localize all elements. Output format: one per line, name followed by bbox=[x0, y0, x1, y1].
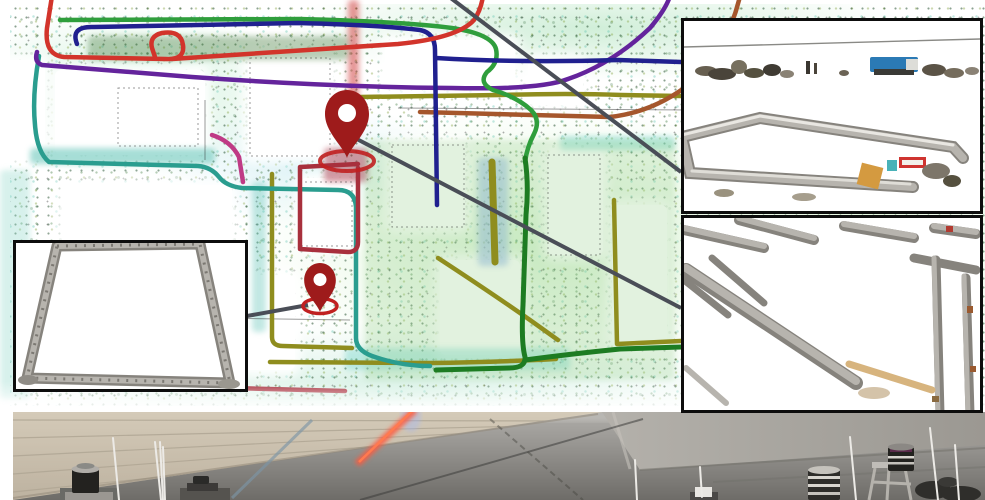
garage-robots-photo bbox=[13, 412, 985, 500]
enclosure-pointcloud-svg bbox=[16, 243, 245, 389]
wall-corner-blob bbox=[218, 379, 240, 389]
courtyard-pointcloud-svg bbox=[684, 21, 980, 211]
figure-canvas bbox=[0, 0, 985, 500]
inset-corridors-pointcloud bbox=[681, 215, 983, 413]
debris-cluster bbox=[695, 60, 979, 80]
garage-photo-svg bbox=[13, 412, 985, 500]
corridor-walls bbox=[684, 218, 976, 410]
courtyard-walls bbox=[684, 116, 963, 187]
location-pin-icon-2 bbox=[304, 263, 336, 312]
trajectory-purple bbox=[36, 0, 670, 88]
powerline bbox=[684, 39, 980, 47]
striped-lidar-cylinder bbox=[808, 466, 840, 500]
leader-line-top-right-inset bbox=[448, 0, 681, 172]
trajectory-maroon bbox=[229, 164, 358, 391]
trajectory-olive bbox=[270, 94, 681, 363]
location-pin-icon-1 bbox=[325, 90, 369, 158]
wall-corner-blob bbox=[18, 375, 38, 385]
corridors-pointcloud-svg bbox=[684, 218, 980, 410]
enclosure-walls bbox=[27, 244, 230, 383]
inset-enclosure-pointcloud bbox=[13, 240, 248, 392]
blue-truck bbox=[870, 57, 918, 75]
leader-line-bottom-left-inset bbox=[247, 305, 308, 316]
trajectory-navy bbox=[75, 23, 681, 205]
trajectory-green bbox=[60, 19, 537, 162]
leader-line-middle-right-inset bbox=[351, 136, 681, 308]
inset-courtyard-pointcloud bbox=[681, 18, 983, 214]
